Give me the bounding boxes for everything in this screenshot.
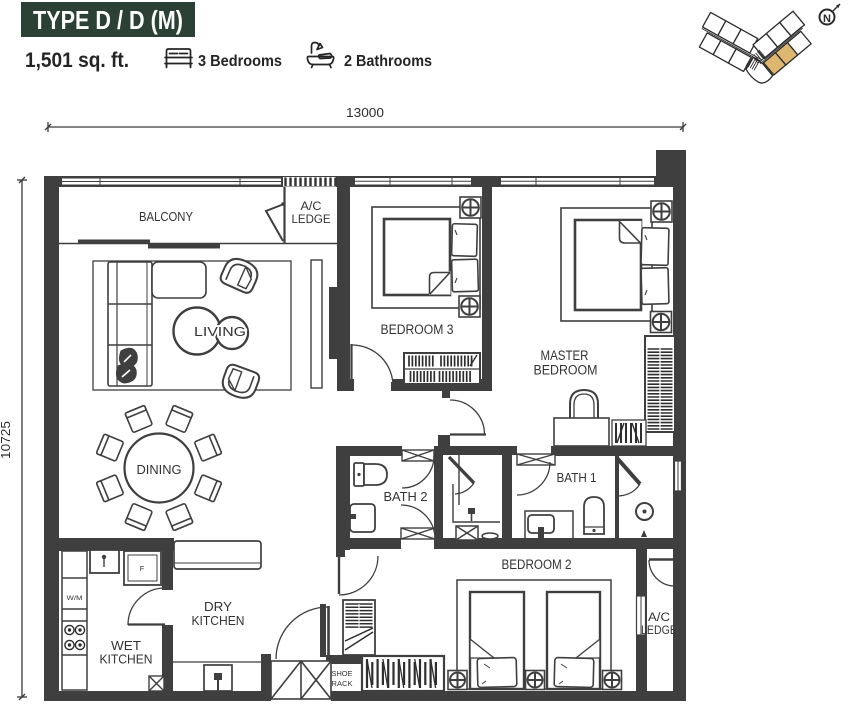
svg-text:MASTER: MASTER xyxy=(541,348,589,363)
svg-text:KITCHEN: KITCHEN xyxy=(100,652,153,667)
svg-text:TYPE D / D (M): TYPE D / D (M) xyxy=(33,5,183,35)
svg-text:W/M: W/M xyxy=(67,595,83,602)
svg-text:RACK: RACK xyxy=(332,679,353,688)
svg-text:DRY: DRY xyxy=(204,599,232,614)
svg-text:BEDROOM 3: BEDROOM 3 xyxy=(381,322,454,337)
svg-text:BEDROOM 2: BEDROOM 2 xyxy=(502,557,572,572)
svg-text:A/C: A/C xyxy=(648,612,670,624)
svg-text:KITCHEN: KITCHEN xyxy=(192,613,245,628)
svg-text:BALCONY: BALCONY xyxy=(139,209,193,224)
svg-text:BEDROOM: BEDROOM xyxy=(534,363,598,378)
svg-text:10725: 10725 xyxy=(0,421,13,459)
svg-text:1,501 sq. ft.: 1,501 sq. ft. xyxy=(25,49,129,72)
svg-text:LEDGE: LEDGE xyxy=(292,214,331,226)
svg-text:BATH 2: BATH 2 xyxy=(384,489,428,504)
svg-text:N: N xyxy=(823,13,831,25)
svg-text:SHOE: SHOE xyxy=(332,669,353,678)
svg-text:A/C: A/C xyxy=(301,201,322,213)
svg-text:BATH 1: BATH 1 xyxy=(557,470,597,485)
svg-text:13000: 13000 xyxy=(346,105,384,120)
svg-text:DINING: DINING xyxy=(137,462,182,477)
svg-text:LEDGE: LEDGE xyxy=(641,625,677,637)
svg-text:F: F xyxy=(140,564,145,573)
svg-text:LIVING: LIVING xyxy=(194,324,246,339)
svg-text:3 Bedrooms: 3 Bedrooms xyxy=(198,53,282,70)
svg-text:2 Bathrooms: 2 Bathrooms xyxy=(344,53,432,70)
